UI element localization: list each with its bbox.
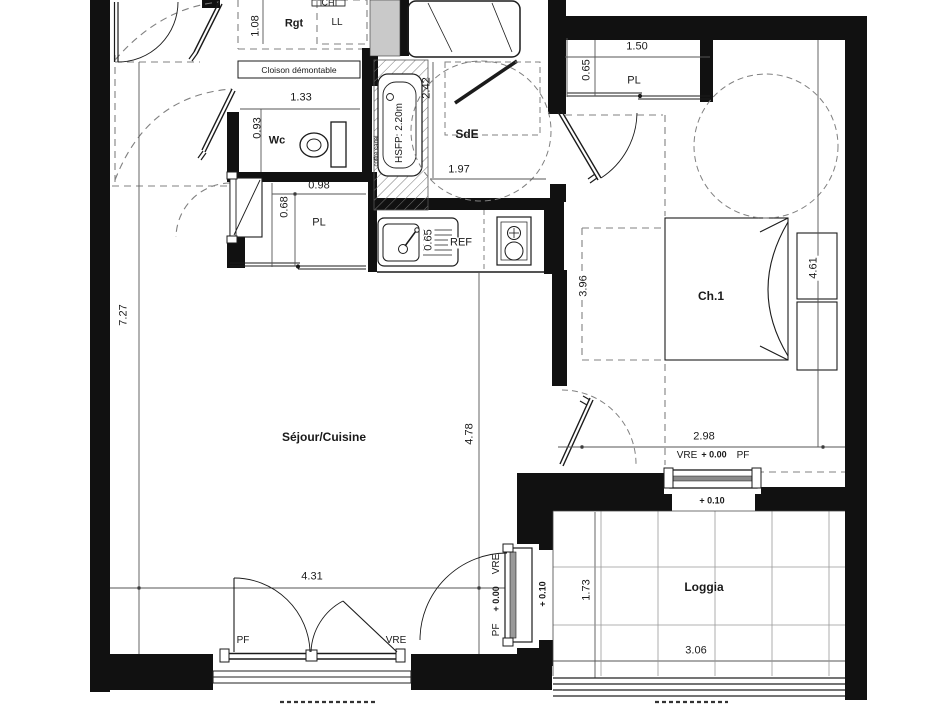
- toilet-icon: [300, 122, 346, 167]
- room-label-rgt: Rgt: [285, 19, 303, 30]
- washer-label: LL: [331, 18, 342, 28]
- loggia-guardrail: [553, 678, 845, 696]
- shower-room: [408, 1, 551, 201]
- window-label-pf-ch1: PF: [737, 451, 750, 461]
- water-heater-label: CH: [322, 0, 335, 8]
- loggia-door-labels: PF+ 0.00VRE: [492, 548, 502, 643]
- dim-wc-depth: 0.93: [253, 117, 264, 138]
- dim-sde-depth: 2.42: [422, 77, 433, 98]
- dim-hall-closet-width: 0.98: [308, 181, 329, 192]
- pf-label: PF: [491, 624, 502, 637]
- partition-label: Cloison démontable: [261, 66, 336, 75]
- closet-label-ch1: PL: [627, 76, 640, 87]
- dim-living-opening: 4.31: [301, 572, 322, 583]
- floorplan-linework: [0, 0, 940, 705]
- turning-circle-ch1: [694, 74, 838, 218]
- room-label-loggia: Loggia: [684, 581, 723, 593]
- closet-label-hall: PL: [312, 218, 325, 229]
- fridge-label: REF: [448, 238, 474, 249]
- hall-living-door: [227, 172, 262, 243]
- dim-loggia-width: 3.06: [683, 646, 708, 657]
- room-label-wc: Wc: [269, 136, 286, 147]
- vre-label: VRE: [491, 554, 502, 575]
- dim-hall-closet-depth: 0.68: [280, 196, 291, 217]
- dim-ch1-closet-depth: 0.65: [582, 59, 593, 80]
- shower-tray: [408, 1, 520, 57]
- level-label-loggia: + 0.10: [699, 497, 724, 506]
- loggia-door: [420, 544, 532, 646]
- window-label-vre-living: VRE: [386, 636, 407, 646]
- dim-living-depth: 7.27: [119, 304, 130, 325]
- dim-ch1-depth: 3.96: [579, 273, 590, 298]
- room-label-living: Séjour/Cuisine: [282, 431, 366, 443]
- window-label-pf-living: PF: [237, 636, 250, 646]
- nightstand: [797, 302, 837, 370]
- dim-ch1-opening: 2.98: [693, 432, 714, 443]
- duct-note: coffre canal: [374, 136, 380, 167]
- floorplan: 1.08 CH Rgt LL Cloison démontable 1.33 0…: [0, 0, 940, 705]
- dimension-lines: [110, 0, 845, 678]
- bed: [665, 218, 837, 370]
- bedroom-window: [664, 468, 761, 488]
- dim-sde-width: 1.97: [448, 165, 469, 176]
- dim-ch1-closet-width: 1.50: [626, 42, 647, 53]
- dim-wc-width: 1.33: [290, 93, 311, 104]
- sink-basin: [383, 224, 419, 261]
- level-label-ch1: + 0.00: [701, 451, 726, 460]
- window-label-vre-ch1: VRE: [677, 451, 698, 461]
- sde-corridor-door: [558, 110, 637, 183]
- room-label-sde: SdE: [455, 128, 478, 140]
- shower-door: [455, 61, 517, 103]
- level-label-threshold: + 0.10: [539, 581, 548, 606]
- dim-loggia-depth: 1.73: [582, 577, 593, 602]
- walls: [90, 0, 867, 700]
- dim-entry-width: 1.08: [251, 15, 262, 36]
- dim-kitchen-counter: 0.65: [424, 227, 435, 252]
- ceiling-height-note: HSFP: 2.20m: [395, 101, 405, 165]
- tap: [399, 245, 408, 254]
- level-label-door: + 0.00: [491, 586, 501, 611]
- living-bedroom-door: [560, 390, 636, 466]
- entry-doors: [115, 2, 236, 160]
- duct: [370, 0, 400, 56]
- room-label-ch1: Ch.1: [698, 290, 724, 302]
- dim-living-mid: 4.78: [465, 421, 476, 446]
- dim-ch1-width: 4.61: [809, 255, 820, 280]
